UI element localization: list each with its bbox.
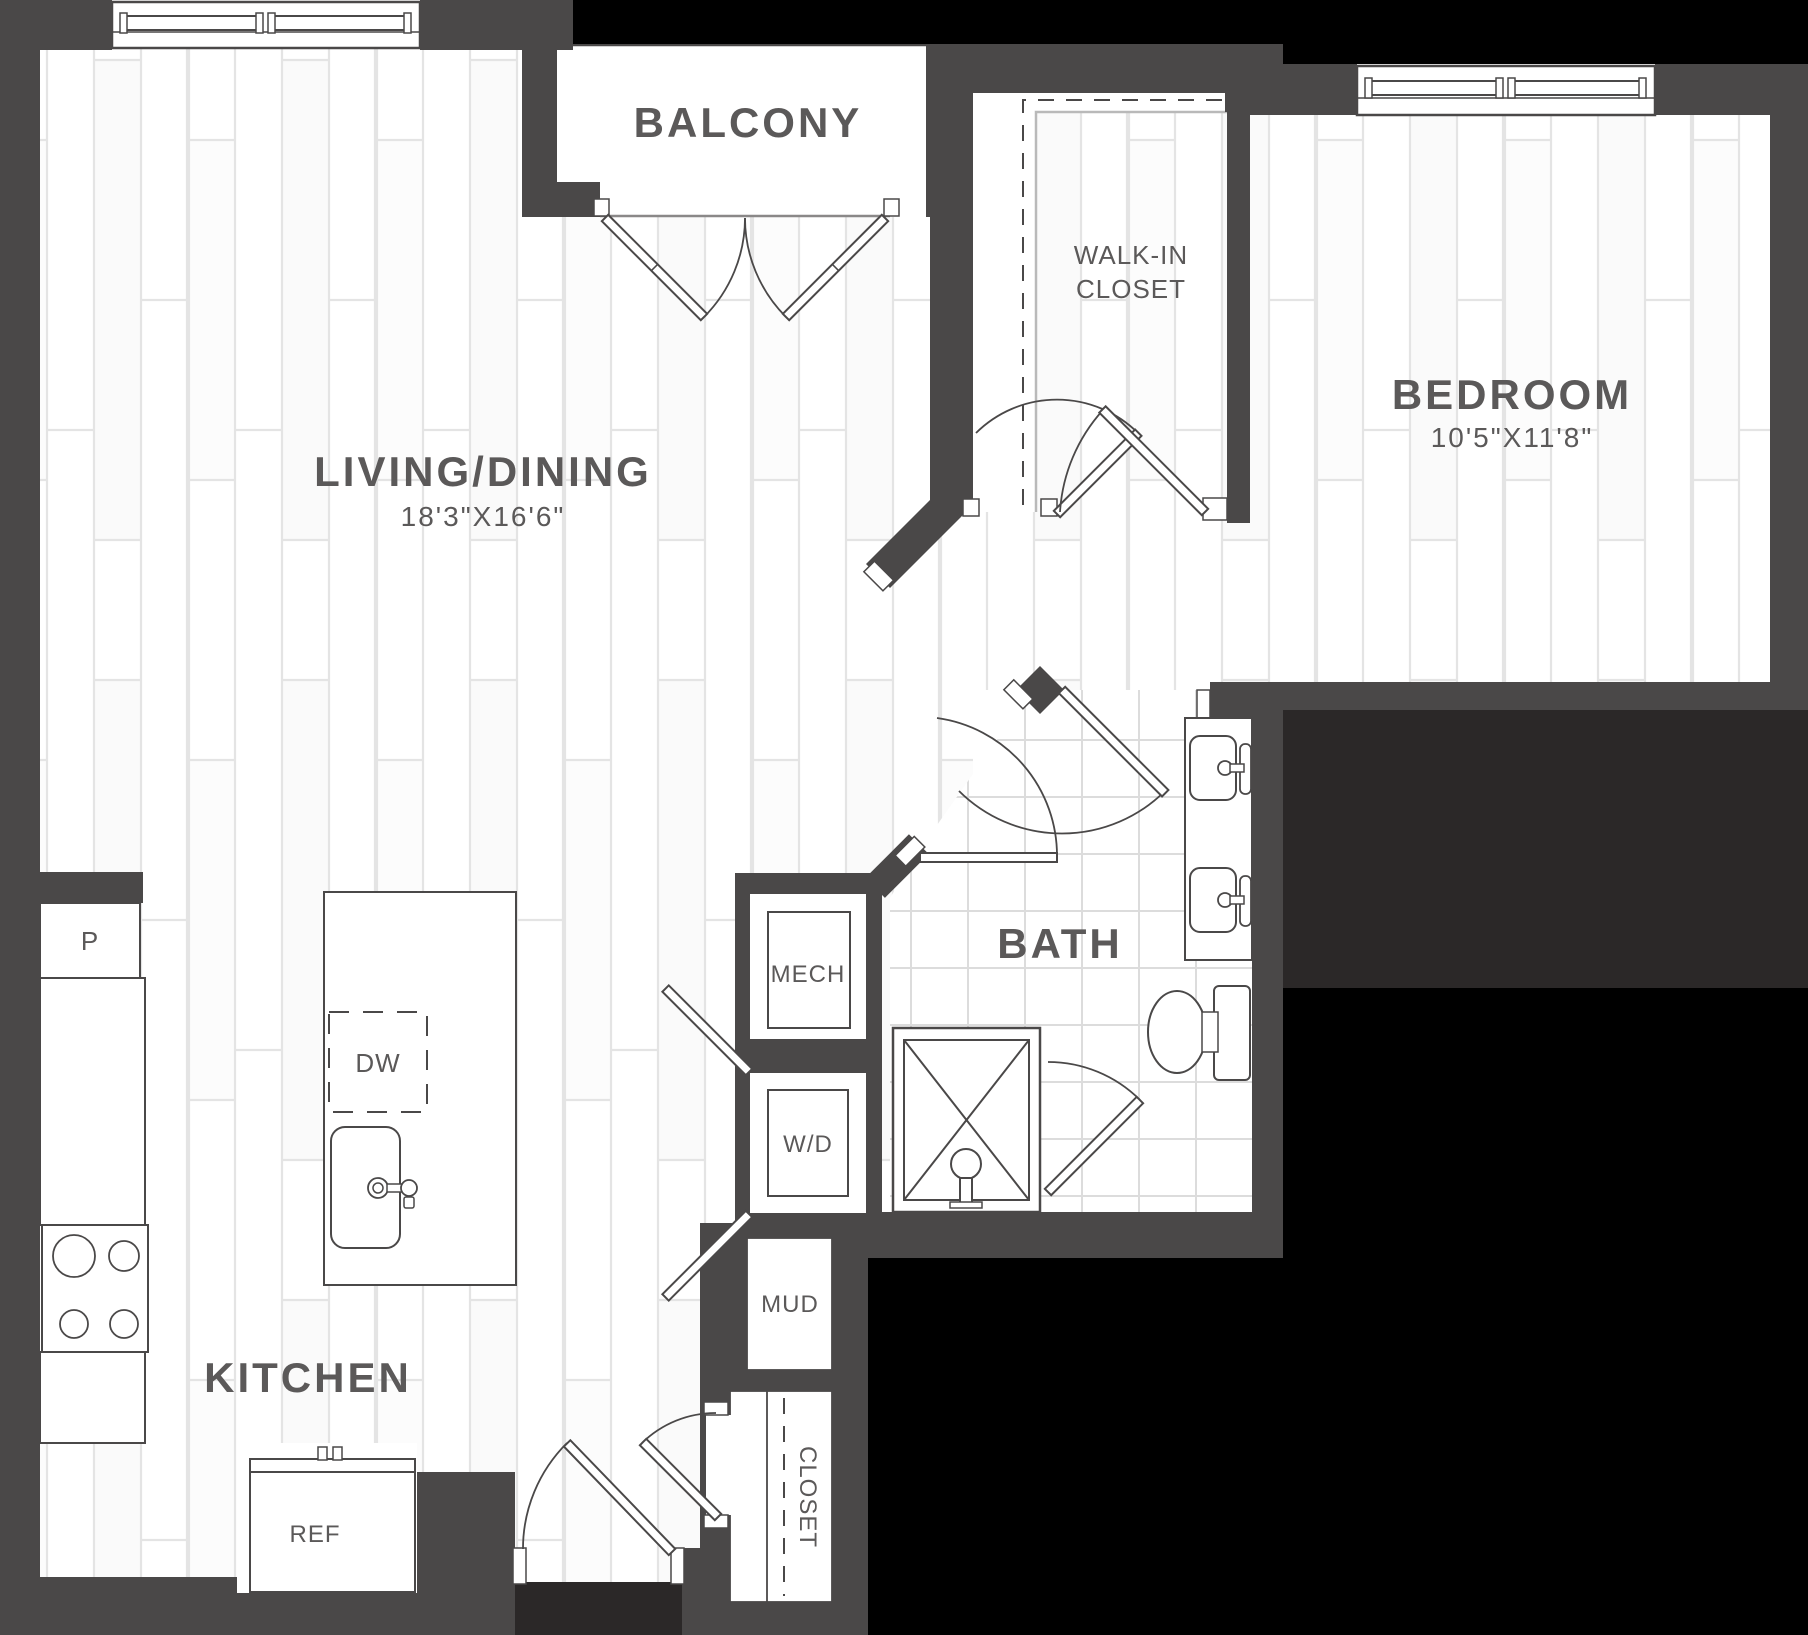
outside-right-soft: [1283, 710, 1808, 988]
outside-right-bottom: [1283, 988, 1808, 1635]
window-living: [112, 2, 420, 48]
bath-vanity: [1185, 718, 1252, 960]
door-jamb: [1041, 499, 1057, 516]
closet-shelf-left: [973, 93, 1036, 512]
faucet-icon: [401, 1180, 417, 1196]
living-dining-dimensions: 18'3"X16'6": [401, 501, 566, 532]
kitchen-label: KITCHEN: [204, 1354, 412, 1401]
living-dining-label: LIVING/DINING: [314, 448, 652, 495]
outside-bottom-center: [868, 1258, 1283, 1635]
faucet-icon: [1230, 764, 1244, 772]
wall-bedroom-north-left: [1247, 64, 1357, 115]
mud-label: MUD: [761, 1291, 819, 1318]
bedroom-dimensions: 10'5"X11'8": [1431, 422, 1594, 453]
door-jamb: [513, 1548, 526, 1584]
walk-in-closet-label-line1: WALK-IN: [1074, 240, 1188, 270]
floor-plan: BALCONY LIVING/DINING 18'3"X16'6" BEDROO…: [0, 0, 1808, 1635]
ref-handle-icon: [333, 1447, 342, 1460]
closet-door-opening: [706, 1415, 732, 1515]
pantry-label: P: [81, 926, 99, 956]
wall-balcony-left: [522, 50, 557, 217]
faucet-icon: [1230, 896, 1244, 904]
mech-label: MECH: [771, 961, 846, 988]
faucet-icon: [373, 1183, 383, 1193]
balcony-label: BALCONY: [634, 99, 863, 146]
wall-bath-south: [868, 1212, 1283, 1258]
entry-closet-label: CLOSET: [794, 1446, 821, 1548]
wall-top-center: [420, 0, 573, 50]
bedroom-label: BEDROOM: [1392, 371, 1632, 418]
refrigerator-label: REF: [290, 1521, 341, 1548]
shower-head-icon: [951, 1149, 981, 1179]
wall-bedroom-north-right: [1655, 64, 1770, 115]
floor-plan-canvas: BALCONY LIVING/DINING 18'3"X16'6" BEDROO…: [0, 0, 1808, 1635]
wall-west: [0, 50, 40, 1577]
ref-handle-icon: [318, 1447, 327, 1460]
wall-bath-east: [1252, 690, 1283, 1258]
wall-living-closet-divider: [930, 217, 973, 505]
shower-stem: [960, 1178, 972, 1204]
door-jamb: [884, 199, 899, 216]
wd-label: W/D: [783, 1131, 833, 1158]
wall-closet-north: [973, 44, 1247, 93]
dishwasher-label: DW: [355, 1048, 400, 1078]
window-bedroom: [1357, 66, 1655, 115]
wall-bedroom-west: [1227, 112, 1250, 523]
kitchen-counter: [40, 978, 145, 1225]
bath-label: BATH: [997, 920, 1123, 967]
walk-in-closet-label-line2: CLOSET: [1076, 274, 1186, 304]
burner-icon: [60, 1310, 88, 1338]
refrigerator-area: [237, 1443, 417, 1593]
wall-entry-left-block: [417, 1472, 515, 1635]
burner-icon: [109, 1241, 139, 1271]
door-jamb: [671, 1548, 684, 1584]
wall-pantry-stub: [40, 872, 143, 903]
burner-icon: [110, 1310, 138, 1338]
outside-top-center: [566, 0, 1092, 44]
wall-balcony-right: [926, 44, 973, 217]
wall-bedroom-south: [1210, 682, 1808, 710]
wall-entry-right-block: [682, 1548, 702, 1635]
door-jamb: [963, 499, 979, 516]
door-jamb: [1197, 690, 1210, 718]
wall-top-left-corner: [0, 0, 112, 50]
burner-icon: [53, 1235, 95, 1277]
wall-east: [1770, 64, 1808, 710]
faucet-icon: [404, 1197, 414, 1208]
door-jamb: [594, 199, 609, 216]
shower-base: [950, 1202, 982, 1208]
kitchen-counter-lower: [40, 1352, 145, 1443]
door-leaf: [920, 853, 1057, 862]
ref-counter-edge: [250, 1459, 415, 1472]
